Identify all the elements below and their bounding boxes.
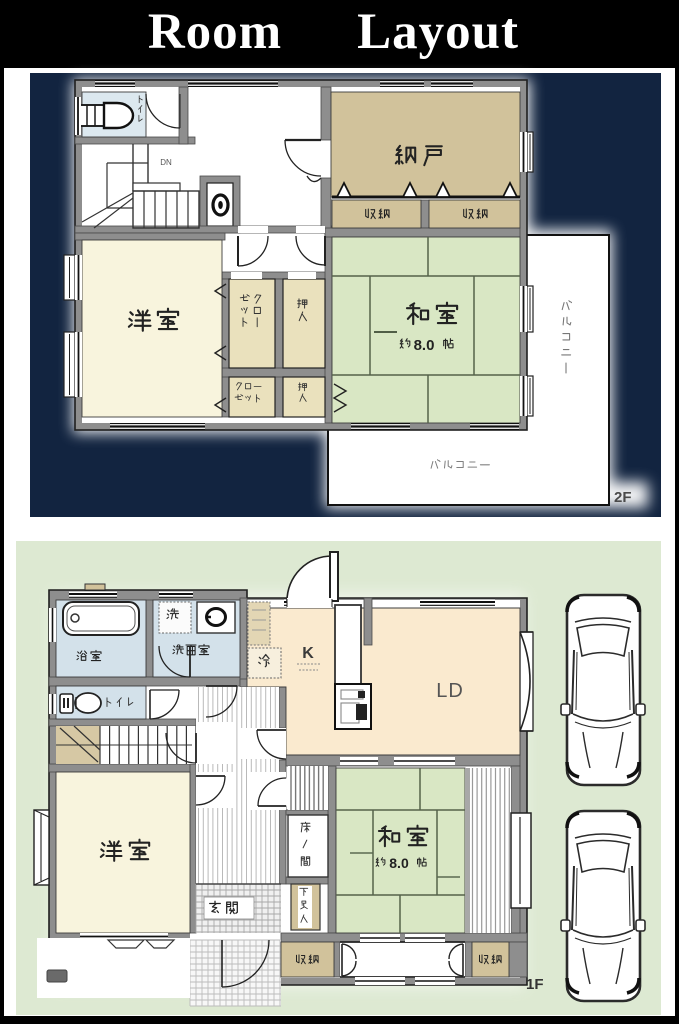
svg-text:K: K	[302, 645, 314, 662]
svg-text:Room: Room	[148, 4, 282, 60]
svg-text:2F: 2F	[614, 489, 632, 506]
svg-text:1F: 1F	[526, 976, 544, 993]
svg-text:8.0: 8.0	[389, 855, 409, 871]
svg-text:8.0: 8.0	[414, 337, 435, 354]
svg-text:LD: LD	[436, 680, 464, 702]
svg-text:Layout: Layout	[357, 4, 519, 60]
svg-text:DN: DN	[160, 158, 172, 167]
